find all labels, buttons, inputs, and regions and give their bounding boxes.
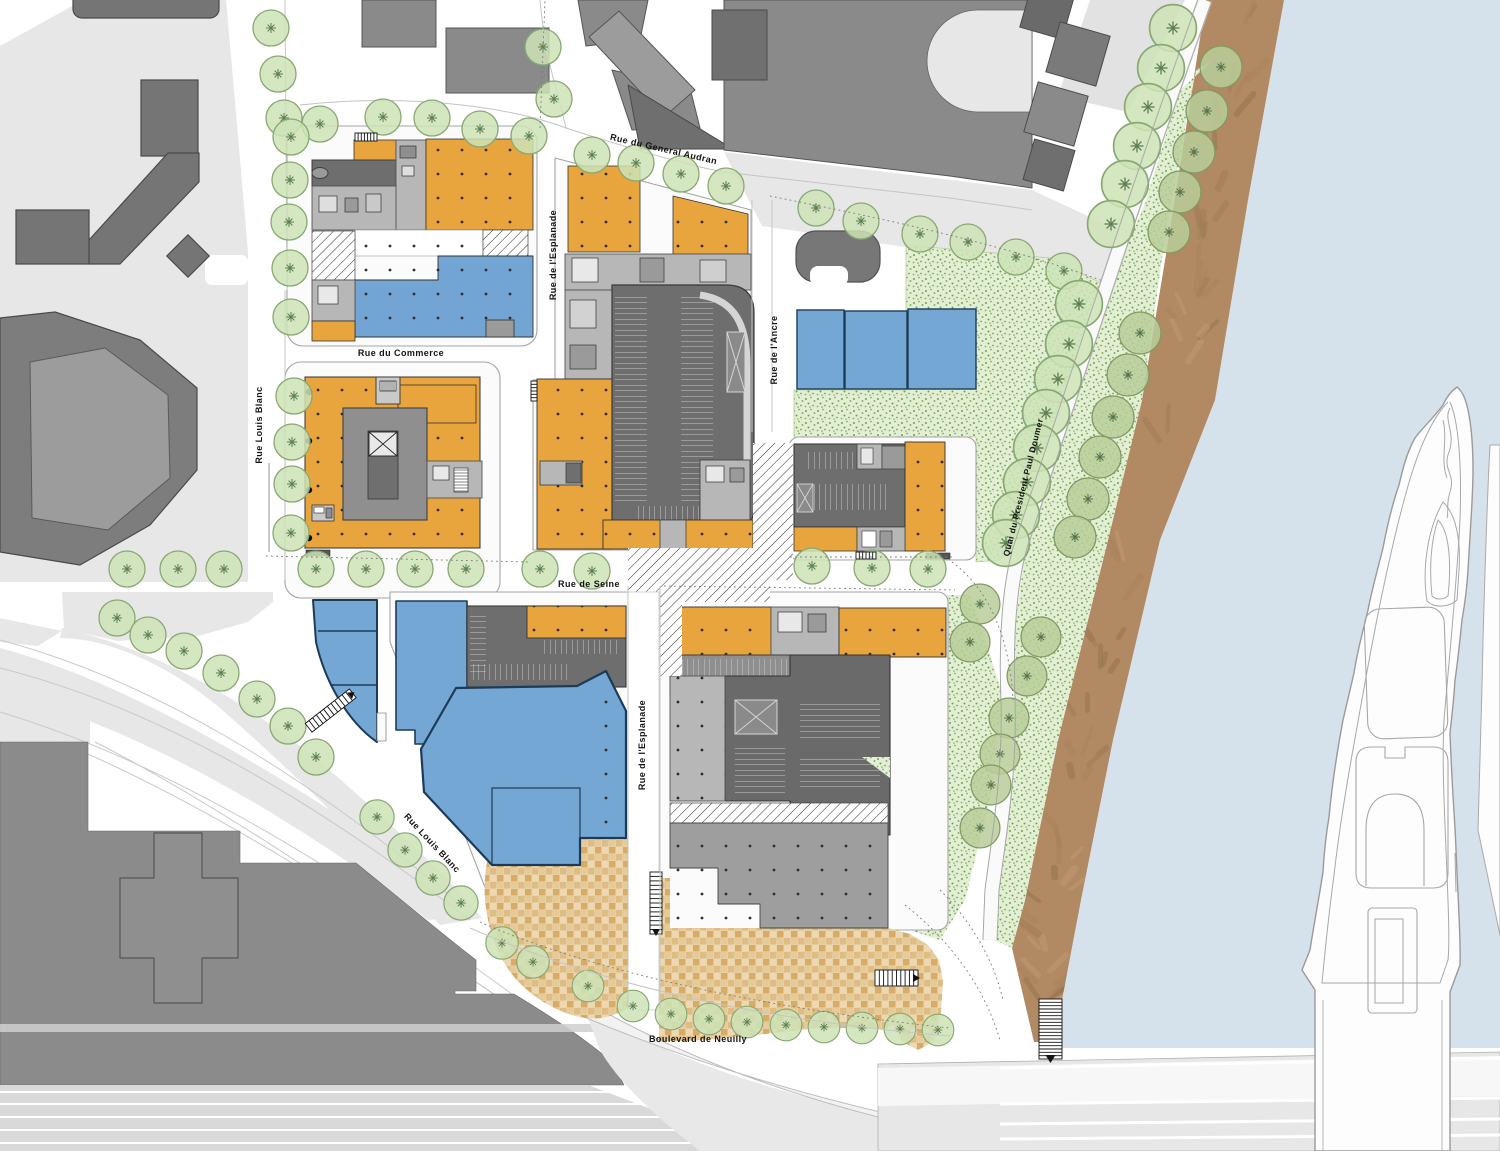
svg-text:Rue de l'Ancre: Rue de l'Ancre	[769, 316, 779, 385]
svg-text:Rue Louis Blanc: Rue Louis Blanc	[254, 386, 264, 463]
svg-text:Rue de Seine: Rue de Seine	[558, 579, 620, 589]
svg-text:Rue de l'Esplanade: Rue de l'Esplanade	[548, 210, 558, 300]
svg-text:Rue de l'Esplanade: Rue de l'Esplanade	[637, 700, 647, 790]
svg-text:Boulevard de Neuilly: Boulevard de Neuilly	[649, 1034, 747, 1044]
svg-text:Rue du Commerce: Rue du Commerce	[358, 348, 444, 358]
